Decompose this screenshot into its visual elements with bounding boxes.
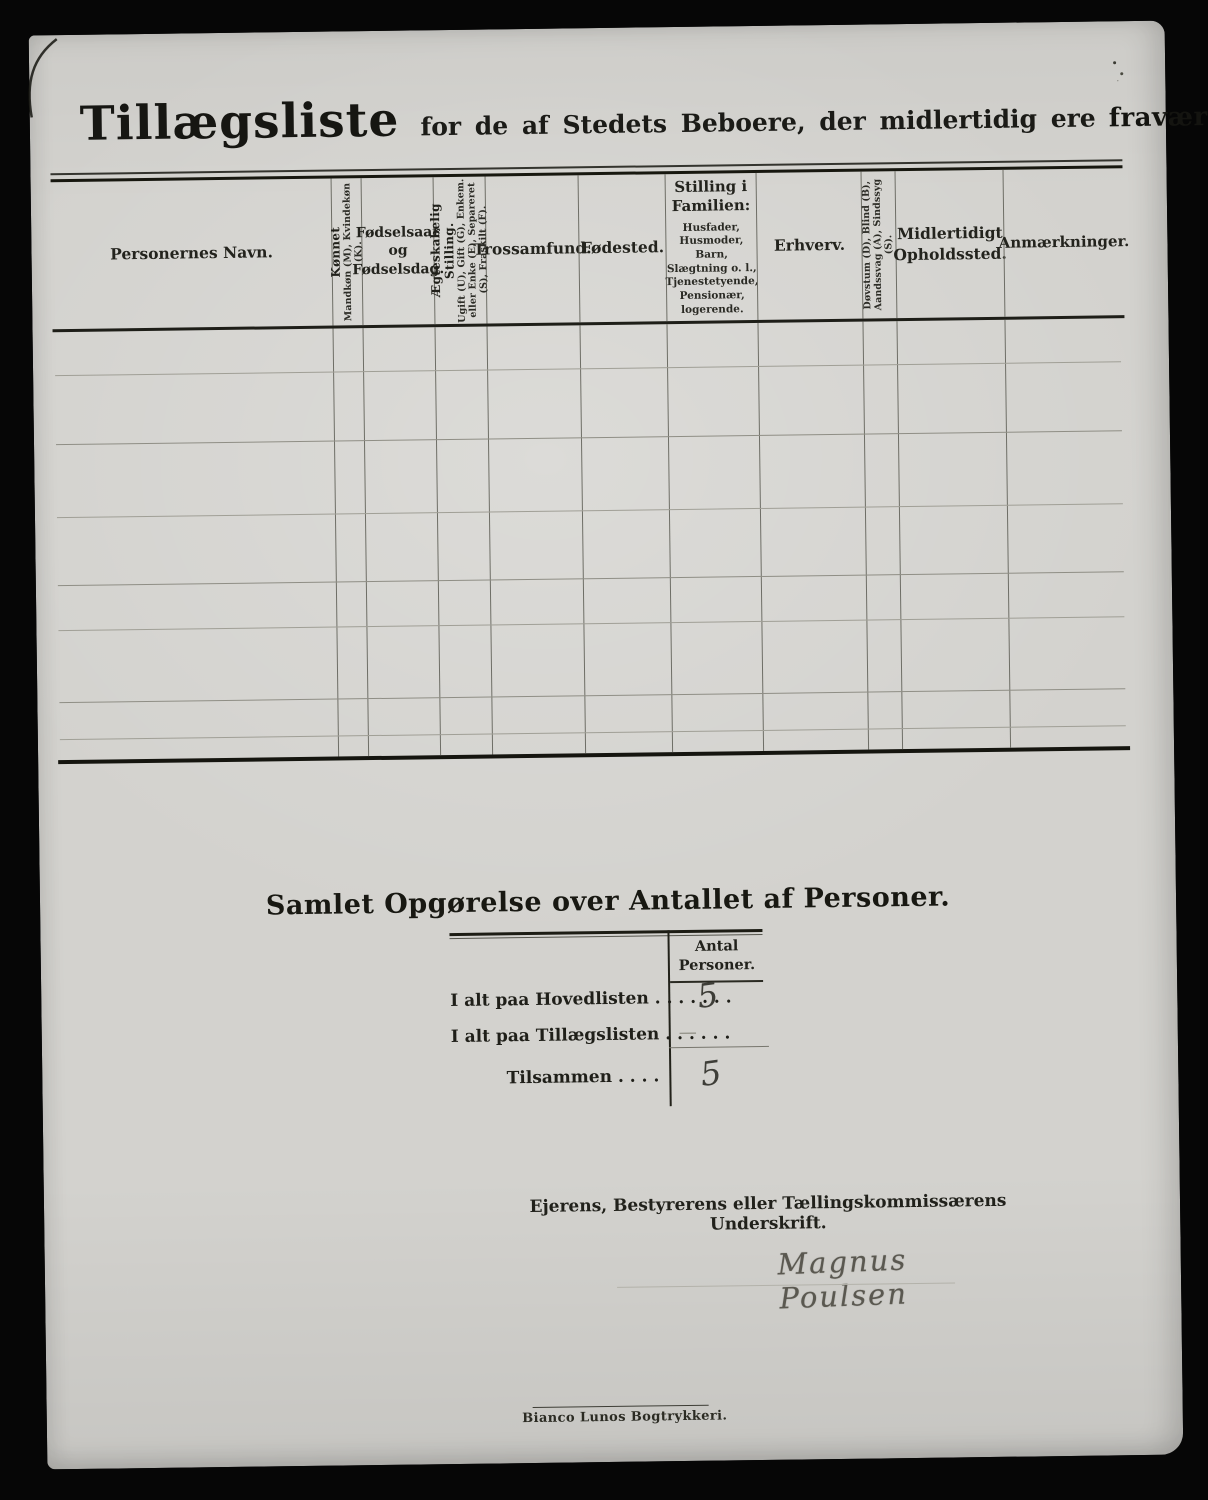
table-header-row: Personernes Navn. Kønnet Mandkøn (M), Kv… [51,168,1125,329]
title-subtitle-text: for de af Stedets Beboere, der midlertid… [420,104,1096,142]
column-header-foedselsaar: Fødselsaar og Fødselsdag. [361,177,435,325]
summary-row-hovedlisten-label: I alt paa Hovedlisten . . . . . . . [450,988,658,1011]
column-header-label: Erhverv. [774,235,845,256]
corner-curl-mark [21,37,64,122]
column-header-sublabel: Ugift (U), Gift (G), Enkem. eller Enke (… [456,176,491,323]
column-header-personernes-navn: Personernes Navn. [51,179,333,330]
summary-column-header: Antal Personer. [671,937,763,976]
column-header-label: Midlertidigt Opholdssted. [893,223,1007,265]
column-header-foedested: Fødested. [578,174,667,322]
printer-line [533,1405,709,1408]
page-title: Tillægsliste for de af Stedets Beboere, … [79,83,1120,152]
column-header-label: Personernes Navn. [110,243,273,265]
column-header-aegteskabelig-stilling: Ægteskabelig Stilling. Ugift (U), Gift (… [433,177,487,325]
column-divider [363,327,441,756]
column-header-stilling-i-familien: Stilling i Familien: Husfader, Husmoder,… [665,173,758,321]
column-divider [53,329,339,761]
column-header-label: Ægteskabelig Stilling. [429,177,459,324]
document-page: Tillægsliste for de af Stedets Beboere, … [29,21,1184,1470]
column-header-label: Anmærkninger. [999,232,1130,253]
title-main-text: Tillægsliste [79,93,399,152]
column-divider [757,322,868,751]
column-header-label: Stilling i Familien: [664,177,757,217]
summary-table: Antal Personer. I alt paa Hovedlisten . … [449,929,768,1138]
summary-row-tillaegslisten-value: — [679,1021,749,1043]
column-header-erhverv: Erhverv. [756,172,863,320]
column-header-midlertidigt-opholdssted: Midlertidigt Opholdssted. [895,170,1005,318]
vertical-text: Døvstum (D), Blind (B), Aandssvag (A), S… [862,171,897,318]
signature-label: Ejerens, Bestyrerens eller Tællingskommi… [528,1191,1008,1237]
column-divider [580,324,673,753]
summary-heading: Samlet Opgørelse over Antallet af Person… [40,879,1176,925]
printer-text: Bianco Lunos Bogtrykkeri. [505,1408,745,1426]
column-header-sublabel: Husfader, Husmoder, Barn, Slægtning o. l… [665,221,759,318]
column-header-label: Døvstum (D), Blind (B), Aandssvag (A), S… [862,171,897,318]
column-divider [896,320,1010,749]
table-body [53,318,1131,760]
column-divider [862,321,902,749]
column-header-koennet: Kønnet Mandkøn (M), Kvindekøn (K). [331,178,363,325]
column-header-label: Fødested. [581,238,664,259]
column-header-label: Trossamfund. [473,239,592,261]
column-divider [435,327,493,756]
column-divider [666,323,763,752]
vertical-text: Kønnet Mandkøn (M), Kvindekøn (K). [328,178,366,325]
summary-row-tillaegslisten-label: I alt paa Tillægslisten . . . . . . [451,1024,659,1047]
column-header-doevstum: Døvstum (D), Blind (B), Aandssvag (A), S… [861,171,897,318]
vertical-text: Ægteskabelig Stilling. Ugift (U), Gift (… [429,176,491,324]
column-header-trossamfund: Trossamfund. [485,175,580,323]
summary-row-tilsammen-value: 5 [698,1052,725,1094]
column-header-composite: Stilling i Familien: Husfader, Husmoder,… [664,177,759,318]
summary-row-tilsammen-label: Tilsammen . . . . [451,1066,659,1089]
title-emphasis-text: fraværende. [1109,101,1208,133]
column-header-sublabel: Mandkøn (M), Kvindekøn (K). [342,178,366,325]
column-header-anmaerkninger: Anmærkninger. [1003,168,1125,317]
census-table: Personernes Navn. Kønnet Mandkøn (M), Kv… [50,159,1130,764]
column-divider [487,325,586,754]
summary-row-divider [669,1046,769,1048]
column-divider [1004,318,1130,748]
ink-specks [1113,61,1116,64]
signature-handwriting: Magnus Poulsen [732,1241,955,1318]
